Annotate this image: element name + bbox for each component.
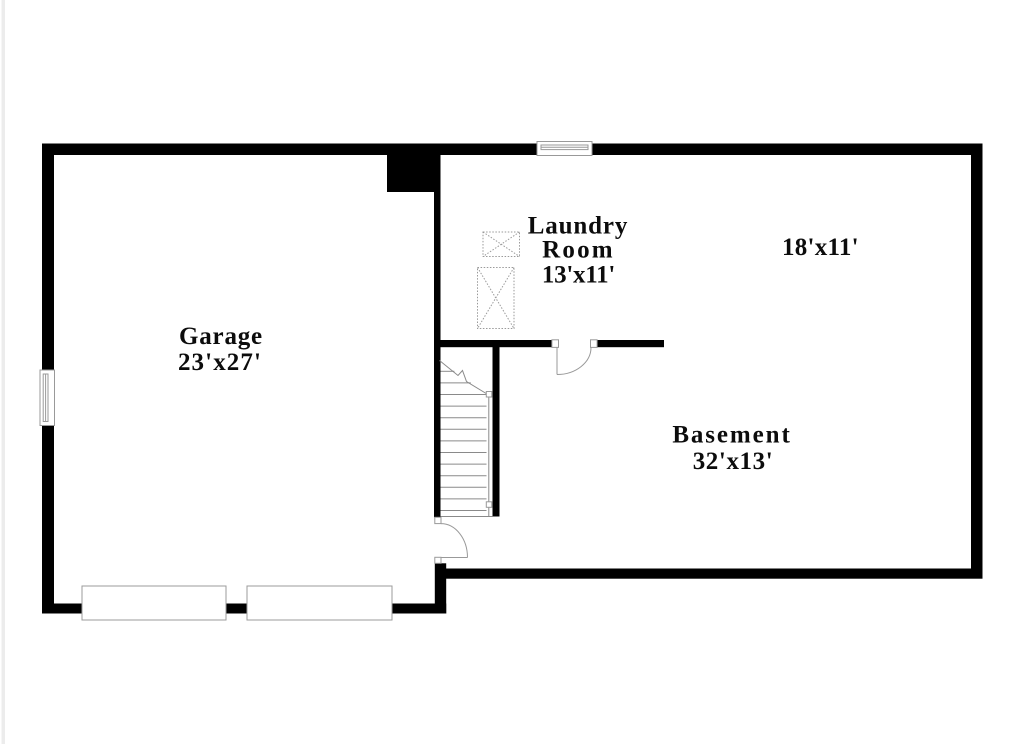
- svg-text:Basement: Basement: [672, 421, 791, 448]
- svg-text:13'x11': 13'x11': [542, 261, 615, 288]
- svg-text:32'x13': 32'x13': [693, 448, 774, 475]
- svg-text:Room: Room: [542, 236, 615, 263]
- svg-text:Garage: Garage: [179, 323, 263, 350]
- svg-text:18'x11': 18'x11': [782, 234, 859, 261]
- svg-text:Laundry: Laundry: [528, 212, 628, 239]
- svg-text:23'x27': 23'x27': [178, 349, 262, 376]
